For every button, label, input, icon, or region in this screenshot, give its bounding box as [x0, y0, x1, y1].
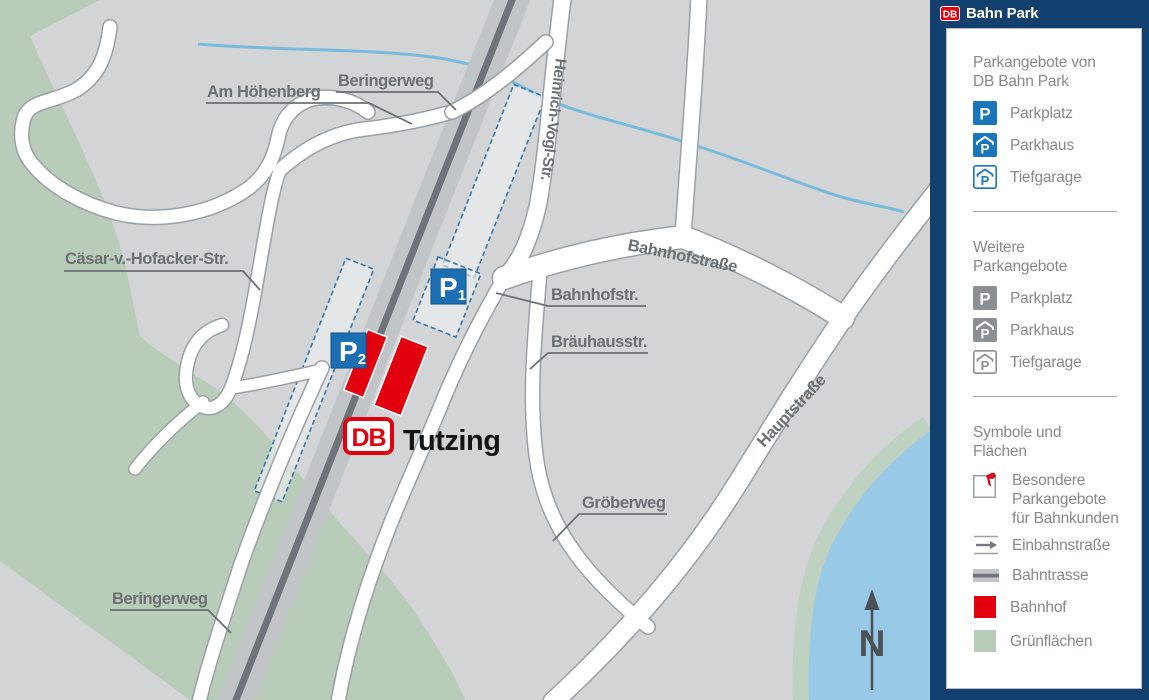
legend-row-one-way: Einbahnstraße — [973, 534, 1127, 556]
svg-text:P: P — [979, 105, 990, 124]
station-name: Tutzing — [403, 425, 500, 457]
svg-text:P: P — [980, 142, 989, 157]
legend-row-special-offers: Besondere Parkangebote für Bahnkunden — [973, 471, 1127, 528]
parkplatz-blue-icon: P — [973, 101, 997, 125]
parking-marker-p1: P1 — [431, 269, 466, 304]
section-title-other-offers: Weitere Parkangebote — [973, 238, 1127, 276]
svg-text:Cäsar-v.-Hofacker-Str.: Cäsar-v.-Hofacker-Str. — [65, 250, 228, 268]
legend-row-tiefgarage-db: P Tiefgarage — [973, 165, 1127, 189]
legend-divider-1 — [973, 211, 1117, 212]
legend-row-parkplatz-db: P Parkplatz — [973, 101, 1127, 125]
parkhaus-blue-icon: P — [973, 133, 997, 157]
section-title-db-offers: Parkangebote von DB Bahn Park — [973, 53, 1127, 91]
station-icon — [973, 595, 997, 619]
legend-row-gruenflaechen: Grünflächen — [973, 629, 1127, 653]
station-map: Am Höhenberg Beringerweg Heinrich-Vogl-S… — [0, 0, 930, 700]
svg-text:P: P — [980, 327, 989, 342]
parkplatz-gray-icon: P — [973, 286, 997, 310]
parkhaus-gray-icon: P — [973, 318, 997, 342]
svg-text:P: P — [979, 290, 990, 309]
tiefgarage-blue-icon: P — [973, 165, 997, 189]
svg-text:Beringerweg: Beringerweg — [112, 590, 208, 608]
bahnpark-map-screenshot: Am Höhenberg Beringerweg Heinrich-Vogl-S… — [0, 0, 1149, 700]
svg-text:Gröberweg: Gröberweg — [582, 494, 666, 512]
legend-title: Bahn Park — [966, 5, 1038, 22]
legend-row-parkhaus-db: P Parkhaus — [973, 133, 1127, 157]
svg-text:N: N — [859, 623, 886, 664]
railway-icon — [973, 567, 999, 584]
parking-marker-p2: P2 — [331, 333, 366, 368]
svg-text:P: P — [981, 358, 990, 373]
one-way-icon — [973, 534, 999, 556]
legend-row-parkhaus-other: P Parkhaus — [973, 318, 1127, 342]
legend-sidebar: DB Bahn Park Parkangebote von DB Bahn Pa… — [930, 0, 1149, 700]
svg-text:Bahnhofstr.: Bahnhofstr. — [551, 286, 638, 304]
legend-panel: Parkangebote von DB Bahn Park P Parkplat… — [946, 28, 1142, 689]
station-db-logo: DB — [345, 419, 392, 453]
legend-row-parkplatz-other: P Parkplatz — [973, 286, 1127, 310]
svg-text:Beringerweg: Beringerweg — [338, 72, 434, 90]
svg-text:DB: DB — [943, 9, 957, 20]
svg-text:P: P — [981, 173, 990, 188]
tiefgarage-gray-icon: P — [973, 350, 997, 374]
db-logo-icon: DB — [940, 6, 960, 21]
legend-row-tiefgarage-other: P Tiefgarage — [973, 350, 1127, 374]
section-title-symbols: Symbole und Flächen — [973, 423, 1127, 461]
legend-row-bahnhof: Bahnhof — [973, 595, 1127, 619]
special-offers-icon — [973, 471, 999, 498]
green-area-icon — [973, 629, 997, 653]
legend-divider-2 — [973, 396, 1117, 397]
legend-header: DB Bahn Park — [930, 0, 1149, 26]
svg-text:Am Höhenberg: Am Höhenberg — [207, 83, 320, 101]
svg-text:DB: DB — [351, 424, 385, 452]
legend-row-bahntrasse: Bahntrasse — [973, 566, 1127, 585]
svg-text:Bräuhausstr.: Bräuhausstr. — [551, 333, 647, 351]
